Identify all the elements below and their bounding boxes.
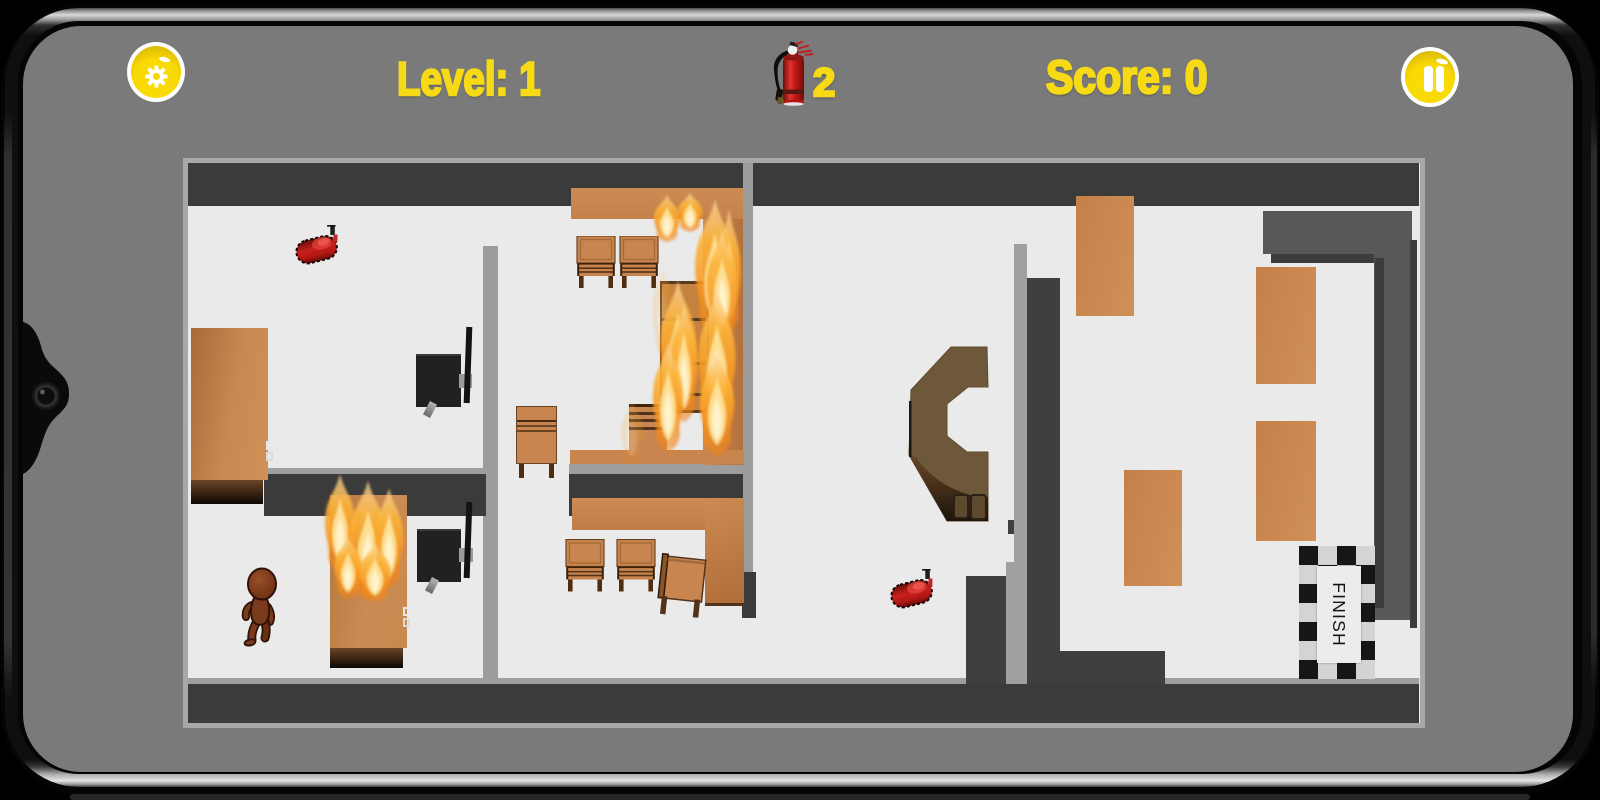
svg-text:FINISH: FINISH — [1329, 582, 1349, 647]
